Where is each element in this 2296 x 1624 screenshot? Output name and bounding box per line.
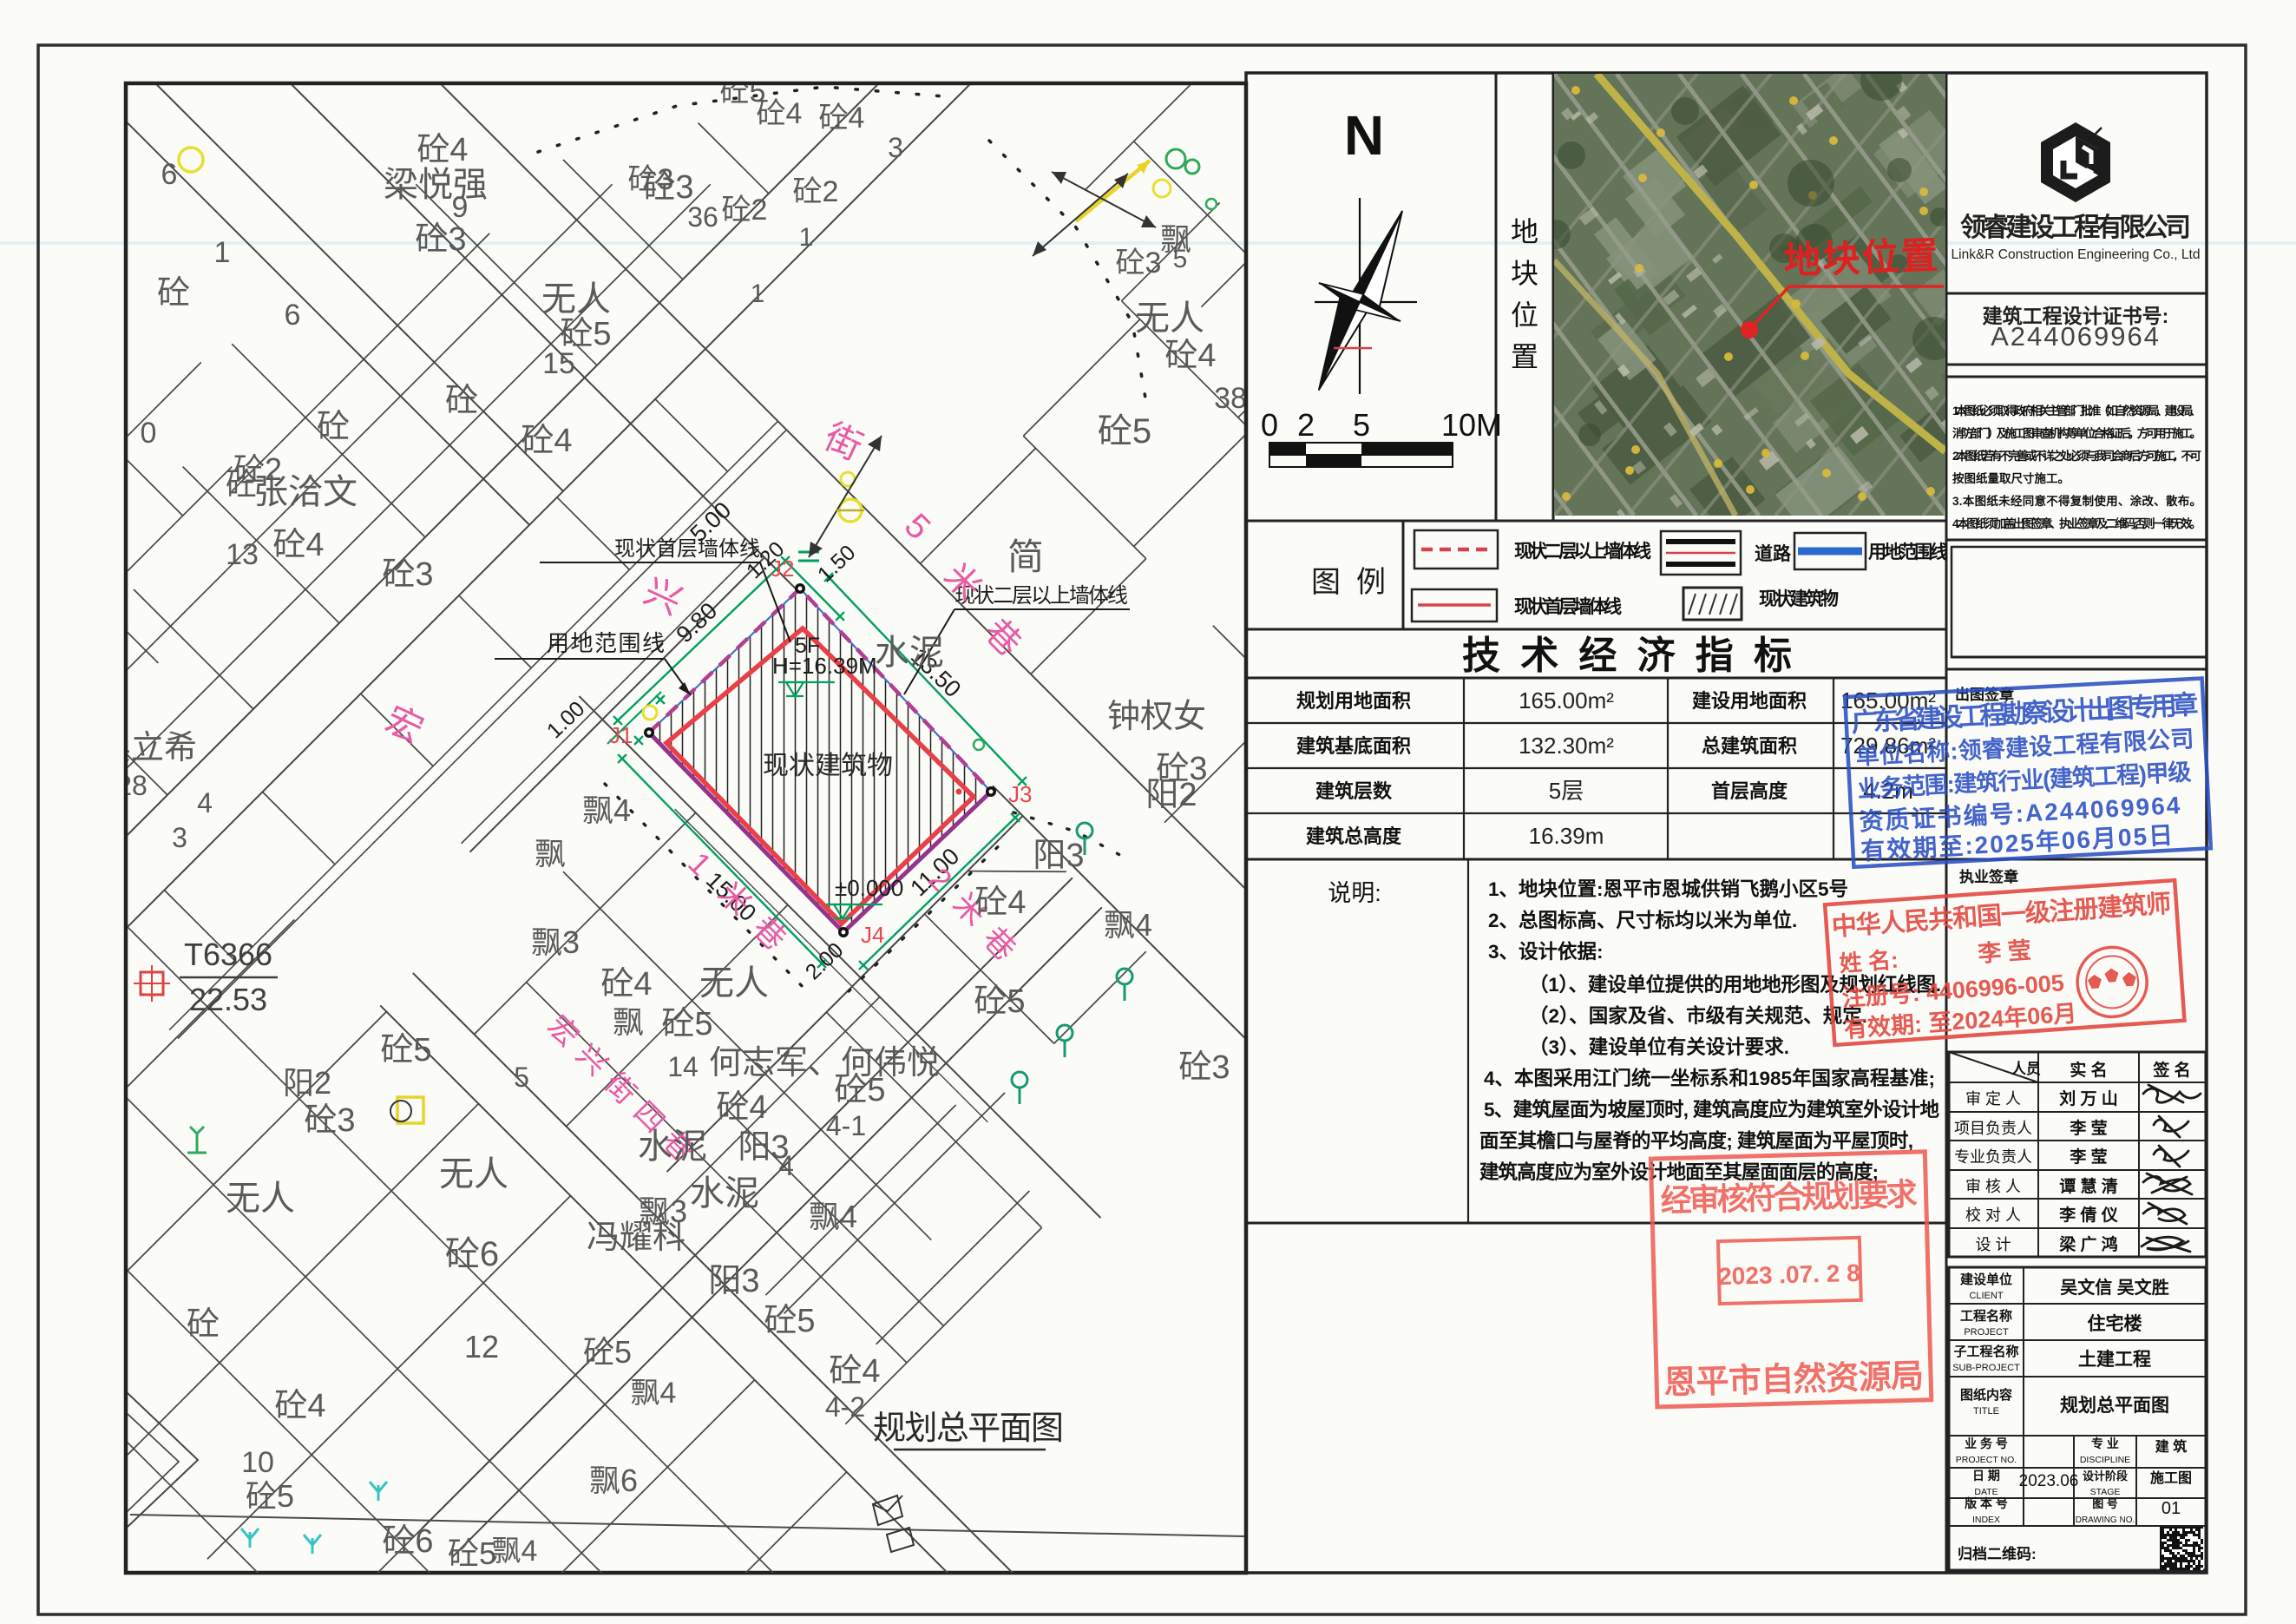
svg-text:飘6: 飘6 — [589, 1463, 638, 1498]
svg-text:审 定 人: 审 定 人 — [1965, 1090, 2021, 1108]
svg-text:1: 1 — [799, 223, 814, 252]
svg-text:165.00m²: 165.00m² — [1519, 687, 1614, 713]
svg-text:用地范围线: 用地范围线 — [547, 630, 665, 656]
svg-text:STAGE: STAGE — [2090, 1487, 2121, 1497]
svg-text:李 莹: 李 莹 — [1976, 937, 2031, 967]
svg-text:地块位置: 地块位置 — [1783, 235, 1941, 282]
svg-text:图: 图 — [1311, 566, 1341, 599]
svg-text:现状二层以上墙体线: 现状二层以上墙体线 — [1514, 541, 1651, 562]
svg-text:4-2: 4-2 — [825, 1391, 865, 1423]
svg-text:1、地块位置:恩平市恩城供销飞鹅小区5号: 1、地块位置:恩平市恩城供销飞鹅小区5号 — [1488, 878, 1848, 900]
svg-text:38: 38 — [1214, 382, 1247, 415]
svg-text:1: 1 — [751, 279, 765, 308]
svg-text:5: 5 — [1173, 245, 1188, 273]
svg-text:图 号: 图 号 — [2092, 1497, 2118, 1510]
svg-text:砼5: 砼5 — [1098, 412, 1151, 450]
svg-text:规划总平面图: 规划总平面图 — [873, 1410, 1064, 1447]
svg-text:梁 广 鸿: 梁 广 鸿 — [2058, 1234, 2118, 1254]
svg-text:15: 15 — [542, 347, 575, 380]
svg-text:DRAWING NO.: DRAWING NO. — [2076, 1516, 2135, 1525]
svg-text:2023.06: 2023.06 — [2019, 1472, 2079, 1490]
svg-text:砼3: 砼3 — [382, 556, 433, 593]
svg-text:阳2: 阳2 — [283, 1065, 331, 1101]
svg-text:16.39m: 16.39m — [1529, 823, 1604, 849]
svg-text:1: 1 — [214, 236, 231, 269]
svg-text:施工图: 施工图 — [2150, 1469, 2192, 1486]
svg-text:砼5: 砼5 — [246, 1478, 294, 1514]
svg-text:土建工程: 土建工程 — [2078, 1349, 2151, 1370]
svg-text:现状首层墙体线: 现状首层墙体线 — [614, 537, 760, 561]
svg-text:李 莹: 李 莹 — [2069, 1118, 2107, 1138]
svg-text:现状建筑物: 现状建筑物 — [1759, 588, 1839, 609]
svg-text:阳2: 阳2 — [1145, 777, 1197, 813]
svg-text:砼6: 砼6 — [382, 1523, 433, 1560]
svg-text:执业签章: 执业签章 — [1959, 868, 2018, 885]
svg-text:何志军、何伟悦: 何志军、何伟悦 — [709, 1045, 940, 1082]
svg-text:2023 .07. 2 8: 2023 .07. 2 8 — [1718, 1259, 1860, 1290]
svg-text:2: 2 — [1297, 407, 1315, 443]
svg-text:消防部门）及施工图审查机构等单位合格证后，方可用于施工。: 消防部门）及施工图审查机构等单位合格证后，方可用于施工。 — [1952, 426, 2201, 440]
svg-text:砼3: 砼3 — [415, 221, 466, 258]
svg-text:项目负责人: 项目负责人 — [1954, 1120, 2032, 1137]
svg-text:3: 3 — [172, 822, 187, 853]
svg-text:业 务 号: 业 务 号 — [1965, 1437, 2008, 1450]
svg-text:砼: 砼 — [226, 466, 257, 502]
svg-text:0: 0 — [1261, 407, 1278, 443]
svg-text:飘4: 飘4 — [582, 792, 631, 828]
svg-text:3、设计依据:: 3、设计依据: — [1488, 940, 1604, 963]
svg-text:位: 位 — [1511, 299, 1538, 331]
svg-text:领睿建设工程有限公司: 领睿建设工程有限公司 — [1960, 213, 2191, 242]
svg-text:13: 13 — [226, 538, 259, 571]
svg-text:现状建筑物: 现状建筑物 — [763, 752, 893, 780]
svg-text:飘4: 飘4 — [809, 1199, 857, 1234]
svg-text:4: 4 — [778, 1150, 794, 1181]
svg-text:砼3: 砼3 — [1116, 247, 1162, 279]
svg-text:建 筑: 建 筑 — [2155, 1438, 2187, 1455]
svg-text:J2: J2 — [771, 556, 794, 582]
svg-text:J4: J4 — [861, 922, 884, 948]
svg-text:DISCIPLINE: DISCIPLINE — [2080, 1455, 2130, 1465]
svg-text:01: 01 — [2162, 1499, 2181, 1518]
svg-text:用地范围线: 用地范围线 — [1868, 542, 1948, 562]
svg-text:0: 0 — [141, 417, 157, 450]
svg-text:规划总平面图: 规划总平面图 — [2060, 1395, 2169, 1416]
svg-text:总建筑面积: 总建筑面积 — [1702, 735, 1797, 757]
svg-text:2、总图标高、尺寸标均以米为单位.: 2、总图标高、尺寸标均以米为单位. — [1488, 909, 1797, 931]
svg-text:人员: 人员 — [2011, 1061, 2041, 1077]
svg-text:钟权女: 钟权女 — [1107, 699, 1206, 735]
svg-text:砼4: 砼4 — [600, 966, 652, 1003]
svg-text:砼5: 砼5 — [974, 983, 1025, 1020]
svg-text:规划用地面积: 规划用地面积 — [1296, 690, 1411, 712]
svg-text:132.30m²: 132.30m² — [1519, 733, 1614, 759]
svg-text:10: 10 — [241, 1446, 274, 1479]
svg-text:砼: 砼 — [317, 409, 350, 445]
svg-text:3.本图纸未经同意不得复制使用、涂改、散布。: 3.本图纸未经同意不得复制使用、涂改、散布。 — [1952, 494, 2201, 508]
svg-text:飘: 飘 — [535, 836, 566, 871]
svg-text:砼3: 砼3 — [304, 1102, 355, 1139]
svg-text:4、本图采用江门统一坐标系和1985年国家高程基准;: 4、本图采用江门统一坐标系和1985年国家高程基准; — [1484, 1067, 1935, 1089]
svg-text:砼5: 砼5 — [380, 1032, 431, 1068]
svg-text:N: N — [1344, 104, 1384, 167]
svg-text:5层: 5层 — [1549, 778, 1584, 804]
svg-text:建设单位: 建设单位 — [1960, 1272, 2012, 1287]
svg-text:日 期: 日 期 — [1972, 1469, 2000, 1483]
svg-text:李 莹: 李 莹 — [2069, 1147, 2107, 1167]
svg-text:J1: J1 — [609, 722, 633, 748]
svg-text:砼3: 砼3 — [628, 163, 674, 196]
svg-text:恩平市自然资源局: 恩平市自然资源局 — [1663, 1358, 1925, 1402]
svg-text:砼4: 砼4 — [417, 132, 468, 168]
svg-text:张洽文: 张洽文 — [253, 473, 358, 511]
svg-text:砼5: 砼5 — [583, 1334, 632, 1370]
svg-text:砼2: 砼2 — [722, 194, 768, 227]
svg-text:建设用地面积: 建设用地面积 — [1692, 690, 1807, 712]
svg-text:梁悦强: 梁悦强 — [384, 166, 488, 204]
svg-text:按图纸量取尺寸施工。: 按图纸量取尺寸施工。 — [1952, 471, 2070, 485]
svg-text:水泥: 水泥 — [875, 634, 944, 672]
svg-text:无人: 无人 — [1135, 299, 1204, 338]
svg-text:PROJECT NO.: PROJECT NO. — [1956, 1455, 2017, 1465]
svg-text:砼4: 砼4 — [974, 884, 1026, 921]
svg-text:飘4: 飘4 — [492, 1535, 538, 1568]
svg-text:22.53: 22.53 — [189, 982, 267, 1017]
svg-text:水泥: 水泥 — [690, 1174, 759, 1213]
svg-text:砼5: 砼5 — [661, 1006, 712, 1042]
svg-text:J3: J3 — [1008, 781, 1032, 807]
svg-text:设计阶段: 设计阶段 — [2083, 1469, 2128, 1483]
svg-text:砼: 砼 — [445, 383, 478, 419]
svg-text:砼5: 砼5 — [448, 1535, 496, 1571]
svg-text:砼4: 砼4 — [521, 423, 572, 459]
svg-text:无人: 无人 — [699, 964, 769, 1003]
svg-text:Link&R Construction Engineerin: Link&R Construction Engineering Co., Ltd — [1952, 247, 2201, 262]
svg-text:版 本 号: 版 本 号 — [1965, 1496, 2008, 1510]
svg-text:H=16.39M: H=16.39M — [772, 653, 877, 679]
svg-text:道路: 道路 — [1755, 543, 1792, 564]
svg-text:5: 5 — [514, 1062, 529, 1093]
svg-text:5: 5 — [1353, 407, 1370, 443]
svg-text:砼5: 砼5 — [834, 1072, 885, 1108]
svg-text:飘4: 飘4 — [631, 1377, 677, 1410]
svg-text:校 对 人: 校 对 人 — [1965, 1206, 2021, 1224]
svg-text:阳3: 阳3 — [708, 1263, 759, 1299]
svg-text:4-1: 4-1 — [826, 1110, 866, 1141]
svg-text:砼5: 砼5 — [764, 1303, 815, 1339]
svg-text:建筑层数: 建筑层数 — [1315, 780, 1393, 802]
svg-text:36: 36 — [687, 201, 718, 233]
svg-text:经审核符合规划要求: 经审核符合规划要求 — [1660, 1176, 1918, 1219]
svg-text:地: 地 — [1511, 216, 1538, 247]
svg-text:3: 3 — [888, 132, 903, 163]
svg-text:（3）、建设单位有关设计要求.: （3）、建设单位有关设计要求. — [1529, 1036, 1789, 1058]
svg-text:专 业: 专 业 — [2091, 1437, 2119, 1450]
svg-text:砼6: 砼6 — [445, 1235, 499, 1273]
svg-text:砼4: 砼4 — [819, 102, 865, 135]
svg-text:置: 置 — [1511, 341, 1538, 372]
svg-text:9: 9 — [452, 191, 469, 224]
svg-text:砼3: 砼3 — [1178, 1049, 1230, 1086]
svg-text:1.本图纸必须取得政府相关主管部门批准（如自然资源局、建设局: 1.本图纸必须取得政府相关主管部门批准（如自然资源局、建设局、 — [1952, 404, 2201, 418]
svg-text:签 名: 签 名 — [2152, 1060, 2190, 1080]
svg-text:4: 4 — [197, 787, 213, 819]
svg-text:CLIENT: CLIENT — [1969, 1291, 2003, 1301]
svg-text:砼4: 砼4 — [829, 1353, 880, 1390]
svg-text:归档二维码:: 归档二维码: — [1958, 1545, 2037, 1562]
svg-text:无人: 无人 — [541, 280, 611, 319]
svg-text:飘3: 飘3 — [531, 924, 580, 960]
svg-text:砼4: 砼4 — [757, 97, 803, 130]
svg-text:例: 例 — [1356, 566, 1386, 599]
svg-text:5、建筑屋面为坡屋顶时, 建筑高度应为建筑室外设计地: 5、建筑屋面为坡屋顶时, 建筑高度应为建筑室外设计地 — [1484, 1098, 1939, 1121]
svg-text:砼2: 砼2 — [793, 175, 839, 208]
svg-text:工程名称: 工程名称 — [1960, 1308, 2012, 1324]
svg-text:现状首层墙体线: 现状首层墙体线 — [1514, 596, 1622, 617]
svg-text:无人: 无人 — [226, 1180, 295, 1218]
svg-text:（2）、国家及省、市级有关规范、规定.: （2）、国家及省、市级有关规范、规定. — [1529, 1004, 1867, 1027]
svg-text:砼4: 砼4 — [1164, 338, 1216, 374]
svg-text:专业负责人: 专业负责人 — [1954, 1148, 2032, 1166]
svg-text:飘4: 飘4 — [1104, 907, 1152, 943]
svg-text:技 术 经 济 指 标: 技 术 经 济 指 标 — [1462, 634, 1792, 677]
svg-text:李 倩 仪: 李 倩 仪 — [2058, 1205, 2119, 1225]
svg-text:INDEX: INDEX — [1972, 1515, 2000, 1525]
svg-text:设 计: 设 计 — [1975, 1236, 2011, 1253]
svg-text:首层高度: 首层高度 — [1711, 780, 1788, 802]
svg-text:简: 简 — [1007, 536, 1044, 577]
svg-text:4.本图纸须加盖出图签章、执业签章及二维码,否则一律无效。: 4.本图纸须加盖出图签章、执业签章及二维码,否则一律无效。 — [1952, 516, 2201, 530]
svg-text:砼4: 砼4 — [272, 527, 324, 563]
svg-text:6: 6 — [285, 299, 301, 332]
svg-text:2.本图纸若有不完善或不详之处必须与我司会商后方可施工，不可: 2.本图纸若有不完善或不详之处必须与我司会商后方可施工，不可 — [1952, 449, 2202, 463]
svg-text:谭 慧 清: 谭 慧 清 — [2059, 1176, 2118, 1196]
svg-text:实 名: 实 名 — [2070, 1060, 2107, 1080]
svg-text:无人: 无人 — [439, 1155, 508, 1193]
svg-text:水泥: 水泥 — [638, 1128, 707, 1166]
svg-text:14: 14 — [667, 1051, 699, 1082]
svg-text:说明:: 说明: — [1328, 880, 1381, 906]
svg-text:阳3: 阳3 — [1033, 838, 1084, 874]
svg-text:10M: 10M — [1441, 407, 1502, 443]
svg-text:12: 12 — [464, 1329, 499, 1364]
svg-text:A244069964: A244069964 — [1991, 321, 2161, 352]
svg-text:PROJECT: PROJECT — [1964, 1327, 2009, 1338]
svg-text:TITLE: TITLE — [1973, 1406, 1999, 1417]
svg-text:吴文信 吴文胜: 吴文信 吴文胜 — [2060, 1277, 2169, 1298]
svg-text:姓 名:: 姓 名: — [1839, 947, 1899, 977]
svg-text:面至其檐口与屋脊的平均高度; 建筑屋面为平屋顶时,: 面至其檐口与屋脊的平均高度; 建筑屋面为平屋顶时, — [1479, 1129, 1913, 1152]
svg-text:刘 万 山: 刘 万 山 — [2059, 1088, 2118, 1108]
svg-text:飘: 飘 — [613, 1004, 644, 1040]
svg-text:图纸内容: 图纸内容 — [1960, 1387, 2012, 1403]
svg-text:砼4: 砼4 — [274, 1388, 325, 1424]
svg-text:砼4: 砼4 — [716, 1089, 767, 1126]
svg-text:T6366: T6366 — [184, 937, 272, 972]
svg-text:砼: 砼 — [157, 275, 190, 312]
svg-text:6: 6 — [161, 158, 178, 191]
svg-text:块: 块 — [1511, 258, 1538, 289]
svg-text:子工程名称: 子工程名称 — [1953, 1344, 2018, 1359]
svg-text:砼: 砼 — [187, 1306, 220, 1343]
svg-text:建筑基底面积: 建筑基底面积 — [1296, 735, 1411, 757]
svg-text:冯耀科: 冯耀科 — [587, 1220, 686, 1256]
svg-text:审 核 人: 审 核 人 — [1965, 1178, 2021, 1195]
svg-text:建筑总高度: 建筑总高度 — [1306, 825, 1402, 847]
svg-text:SUB-PROJECT: SUB-PROJECT — [1952, 1363, 2020, 1373]
svg-text:住宅楼: 住宅楼 — [2088, 1313, 2142, 1334]
svg-text:±0.000: ±0.000 — [835, 875, 903, 901]
